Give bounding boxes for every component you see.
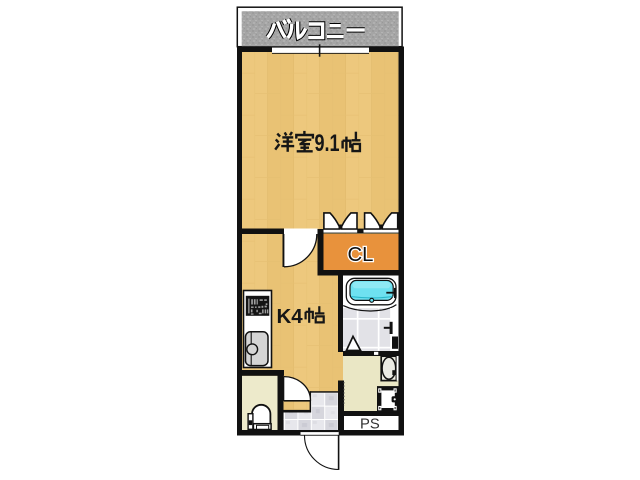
svg-text:9.1: 9.1 <box>315 130 340 157</box>
svg-text:K4: K4 <box>277 305 304 328</box>
svg-text:PS: PS <box>360 416 380 432</box>
svg-text:CL: CL <box>348 244 374 266</box>
